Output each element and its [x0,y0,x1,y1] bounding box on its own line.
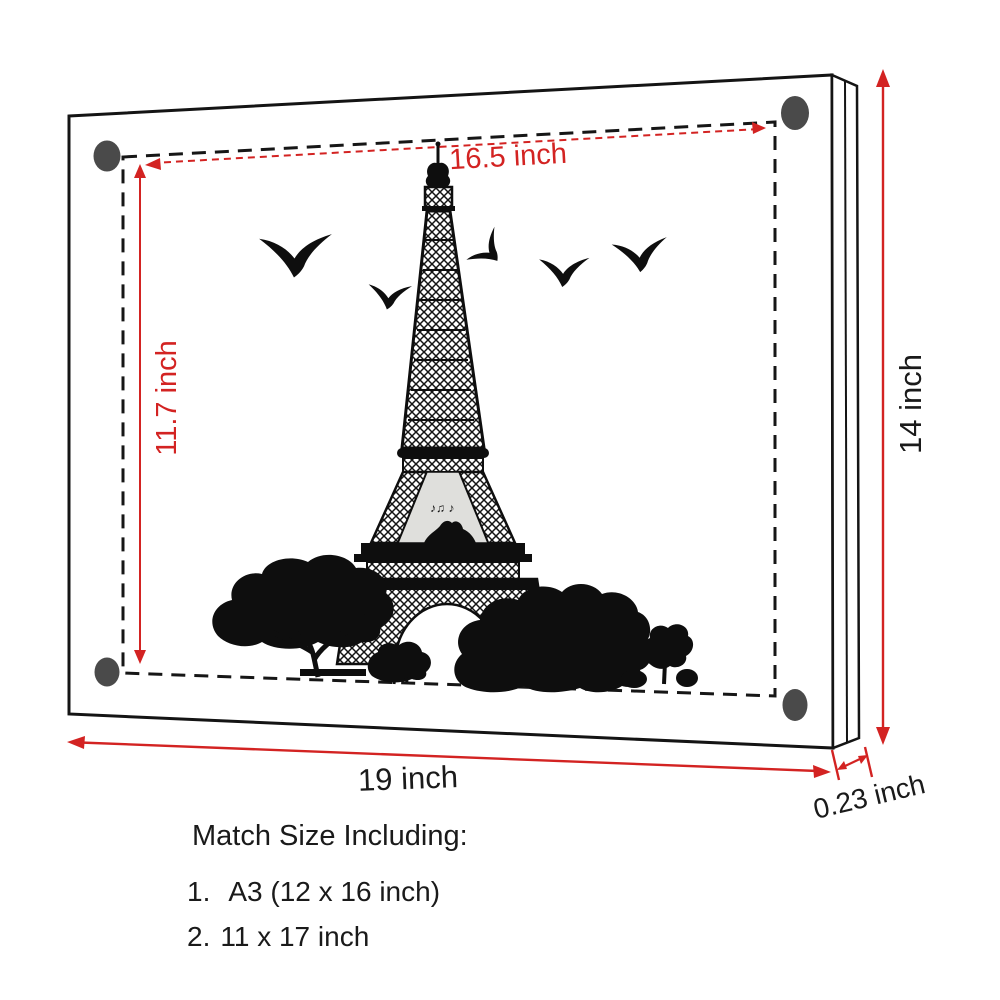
magnet-top-right [781,96,809,130]
magnet-bottom-left [95,658,120,687]
tower-second-platform-band [403,458,483,472]
thickness-label: 0.23 inch [810,768,928,825]
outer-height-label: 14 inch [893,354,928,454]
arrowhead [858,755,868,764]
tree-small-trunk [664,662,665,684]
tower-lantern [426,163,450,187]
magnet-top-left [94,141,121,172]
arrowhead [876,727,890,745]
tower-second-platform [397,448,489,458]
thickness-dim-line [843,758,862,767]
diagram-canvas: ♪♫ ♪ 16.5 inch 11.7 inch 14 inch 19 inch [0,0,1000,1000]
inner-width-label: 16.5 inch [448,138,567,177]
product-dimension-image: { "colors": { "dimension_red": "#d32322"… [0,0,1000,1000]
panel-music-notes: ♪♫ ♪ [430,501,454,515]
match-size-heading: Match Size Including: [192,820,468,853]
bush-right-2 [676,669,698,687]
item-label: 11 x 17 inch [220,921,369,953]
item-number: 2. [187,921,210,953]
match-size-item-1: 1. A3 (12 x 16 inch) [187,876,440,908]
thickness-tick-right [865,747,872,777]
item-number: 1. [187,876,210,908]
arrowhead [67,736,85,749]
item-label: A3 (12 x 16 inch) [228,876,440,908]
thickness-tick-left [832,750,839,780]
tower-cage [425,187,452,209]
tower-first-platform-band [367,562,519,579]
tower-first-platform-rail [361,543,525,554]
arrowhead [813,765,831,778]
magnet-bottom-right [783,689,808,721]
match-size-item-2: 2. 11 x 17 inch [187,921,369,953]
outer-width-label: 19 inch [357,759,458,798]
tower-first-platform [354,554,532,562]
arrowhead [837,761,847,770]
inner-height-label: 11.7 inch [151,340,183,456]
arrowhead [876,69,890,87]
bush-right-1 [621,670,647,688]
bench [300,669,366,676]
